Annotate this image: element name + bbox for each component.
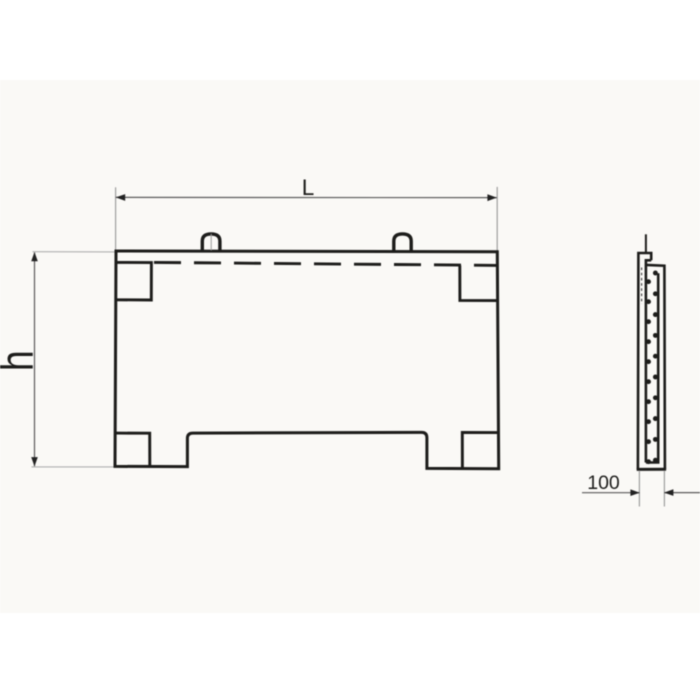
svg-text:h: h bbox=[0, 350, 42, 371]
svg-text:100: 100 bbox=[587, 472, 620, 494]
svg-text:L: L bbox=[302, 175, 315, 200]
